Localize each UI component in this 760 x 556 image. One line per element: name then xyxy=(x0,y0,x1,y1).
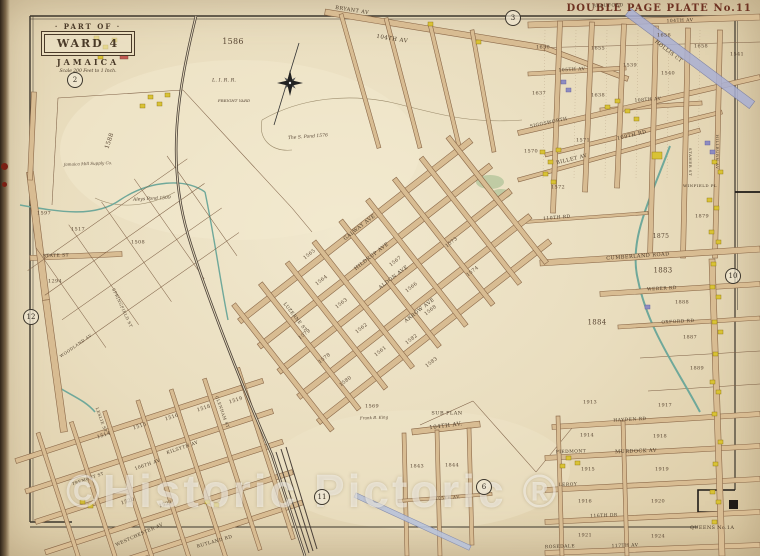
block-number: 1914 xyxy=(580,434,594,439)
map-line xyxy=(543,30,545,180)
road xyxy=(28,92,37,180)
building-footprint xyxy=(714,206,719,210)
building-footprint xyxy=(165,93,170,97)
road xyxy=(232,303,334,432)
plate-ref-3: 3 xyxy=(505,10,521,26)
building-footprint xyxy=(710,380,715,384)
block-number: 1884 xyxy=(587,320,606,327)
street-label: STATE ST xyxy=(43,254,69,259)
map-line xyxy=(52,98,58,205)
block-number: 1539 xyxy=(623,64,637,69)
block-number: 1917 xyxy=(658,404,672,409)
cartouche-ward: WARD 4 xyxy=(44,34,132,53)
block-number: 1920 xyxy=(651,500,665,505)
building-footprint xyxy=(707,198,712,202)
plate-ref-12: 12 xyxy=(23,309,39,325)
street-label: 117TH AV xyxy=(612,544,639,549)
block-number: 1919 xyxy=(655,468,669,473)
building-footprint xyxy=(718,440,723,444)
building-footprint xyxy=(716,240,721,244)
border-square xyxy=(729,500,738,509)
road xyxy=(545,543,760,556)
road xyxy=(552,412,760,430)
building-footprint xyxy=(716,390,721,394)
building-footprint xyxy=(709,230,714,234)
building-footprint xyxy=(705,141,710,145)
building-footprint xyxy=(713,352,718,356)
building-footprint xyxy=(575,461,580,465)
street-label: 104TH AV xyxy=(667,19,694,24)
block-number: 1889 xyxy=(690,367,704,372)
corner-note: QUEENS No.1A xyxy=(690,525,734,531)
building-footprint xyxy=(711,262,716,266)
street-label: HILLBURN AV xyxy=(715,134,719,169)
cartouche-place: JAMAICA xyxy=(36,57,140,67)
atlas-map-page: DOUBLE PAGE PLATE No.11 PART OF WARD 4 J… xyxy=(0,0,760,556)
building-footprint xyxy=(476,40,481,44)
map-line xyxy=(640,351,760,358)
border-marks xyxy=(729,500,738,509)
block-number: 1924 xyxy=(651,535,665,540)
building-footprint xyxy=(605,105,610,109)
block-number: 1888 xyxy=(675,301,689,306)
paper-blotch xyxy=(60,60,420,240)
road xyxy=(600,282,760,297)
block-number: 1883 xyxy=(653,268,672,275)
block-number: 1879 xyxy=(695,215,709,220)
building-footprint xyxy=(716,295,721,299)
building-footprint xyxy=(615,99,620,103)
street-label: STAHER ST xyxy=(688,148,692,176)
block-number: 1637 xyxy=(532,92,546,97)
building-footprint xyxy=(710,285,715,289)
building-footprint xyxy=(718,330,723,334)
block-number: 1508 xyxy=(131,241,145,246)
map-cartouche: PART OF WARD 4 JAMAICA Scale 200 Feet to… xyxy=(36,22,140,74)
map-line xyxy=(79,233,239,345)
block-number: 1887 xyxy=(683,336,697,341)
block-number: 1541 xyxy=(730,53,744,58)
street-label: SUB PLAN xyxy=(431,412,462,417)
block-number: 1921 xyxy=(578,534,592,539)
map-line xyxy=(648,384,760,391)
building-footprint xyxy=(716,500,721,504)
plate-ref-2: 2 xyxy=(67,72,83,88)
block-number: 1570 xyxy=(524,150,538,155)
building-footprint xyxy=(625,109,630,113)
building-footprint xyxy=(566,88,571,92)
building-footprint xyxy=(713,462,718,466)
block-number: 1517 xyxy=(71,228,85,233)
building-footprint xyxy=(551,180,556,184)
plate-ref-6: 6 xyxy=(476,479,492,495)
block-number: 1875 xyxy=(653,234,669,240)
cartouche-scale: Scale 200 Feet to 1 Inch. xyxy=(36,69,140,74)
wax-spot xyxy=(2,182,7,187)
block-number: 1597 xyxy=(37,212,51,217)
building-footprint xyxy=(712,320,717,324)
road xyxy=(470,30,496,153)
road xyxy=(428,24,462,151)
building-footprint xyxy=(428,22,433,26)
street-label: 116TH DR xyxy=(590,514,618,519)
building-footprint xyxy=(718,170,723,174)
block-number: 1650 xyxy=(536,46,550,51)
book-gutter-shadow xyxy=(0,0,10,556)
block-number: 1294 xyxy=(48,280,62,285)
block-number: 1655 xyxy=(591,47,605,52)
block-number: 1540 xyxy=(661,72,675,77)
map-line xyxy=(530,42,760,48)
block-number: 1656 xyxy=(657,34,671,39)
block-number: 1915 xyxy=(581,468,595,473)
compass-center xyxy=(289,82,291,84)
street-label: LEROY xyxy=(559,483,578,488)
block-number: 1658 xyxy=(694,45,708,50)
building-footprint xyxy=(148,95,153,99)
building-footprint xyxy=(556,148,561,152)
building-footprint xyxy=(652,152,662,159)
block-number: 1913 xyxy=(583,401,597,406)
building-footprint xyxy=(543,172,548,176)
plate-ref-11: 11 xyxy=(314,489,330,505)
area-label: FREIGHT YARD xyxy=(218,99,250,103)
plate-ref-10: 10 xyxy=(725,268,741,284)
building-footprint xyxy=(540,150,545,154)
building-footprint xyxy=(634,117,639,121)
building-footprint xyxy=(710,490,715,494)
building-footprint xyxy=(560,464,565,468)
building-footprint xyxy=(140,104,145,108)
road xyxy=(43,300,68,433)
block-number: 1571 xyxy=(576,139,590,144)
road xyxy=(545,510,760,525)
building-footprint xyxy=(566,456,571,460)
cartouche-part-of: PART OF xyxy=(36,22,140,31)
area-label: L. I. R. R. xyxy=(212,79,236,84)
wax-spot xyxy=(1,163,8,170)
building-footprint xyxy=(712,520,717,524)
street-label: WINFIELD PL xyxy=(683,184,717,188)
block-number: 1586 xyxy=(222,38,244,46)
block-number: 1916 xyxy=(578,500,592,505)
building-footprint xyxy=(645,305,650,309)
building-footprint xyxy=(712,412,717,416)
building-footprint xyxy=(157,102,162,106)
building-footprint xyxy=(561,80,566,84)
block-number: 1918 xyxy=(653,435,667,440)
block-number: 1572 xyxy=(551,186,565,191)
block-number: 1638 xyxy=(591,94,605,99)
block-number: 1569 xyxy=(365,405,379,410)
building-footprint xyxy=(548,160,553,164)
